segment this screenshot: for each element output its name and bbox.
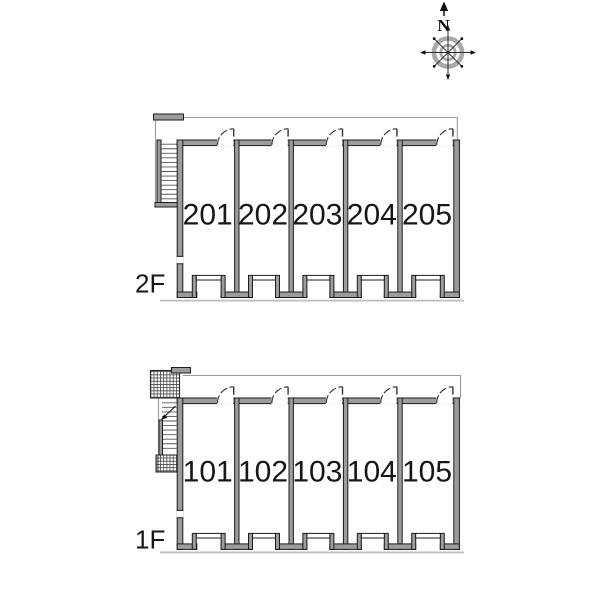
compass: N bbox=[420, 2, 476, 81]
room-label-105: 105 bbox=[402, 456, 452, 489]
room-label-201: 201 bbox=[183, 199, 233, 232]
room-label-202: 202 bbox=[238, 199, 288, 232]
balcony-rail-wall bbox=[154, 114, 184, 120]
compass-rose-icon bbox=[420, 25, 476, 80]
side-window-1f bbox=[177, 510, 184, 517]
room-label-101: 101 bbox=[183, 456, 233, 489]
bay-windows-1f bbox=[196, 533, 440, 538]
north-arrow-icon bbox=[440, 2, 448, 17]
floor-label-1f: 1F bbox=[135, 525, 165, 555]
room-label-204: 204 bbox=[347, 199, 397, 232]
stair-hatch-upper bbox=[151, 371, 180, 399]
corridor-outline bbox=[184, 118, 458, 141]
room-label-102: 102 bbox=[238, 456, 288, 489]
room-label-205: 205 bbox=[402, 199, 452, 232]
canopy-outline bbox=[183, 376, 461, 399]
side-window-2f bbox=[177, 256, 184, 263]
floor-2f-plan: 201 202 203 204 205 2F bbox=[135, 114, 464, 301]
floor-label-2f: 2F bbox=[135, 269, 165, 299]
room-label-103: 103 bbox=[292, 456, 342, 489]
bay-windows-2f bbox=[196, 275, 440, 280]
floor-plan-page: N bbox=[0, 0, 600, 600]
room-label-203: 203 bbox=[292, 199, 342, 232]
room-label-104: 104 bbox=[347, 456, 397, 489]
floor-plan-canvas: N bbox=[0, 0, 600, 600]
staircase-2f bbox=[155, 140, 178, 207]
floor-1f-plan: 101 102 103 104 105 1F bbox=[135, 368, 464, 555]
stair-hatch-lower bbox=[156, 455, 178, 472]
